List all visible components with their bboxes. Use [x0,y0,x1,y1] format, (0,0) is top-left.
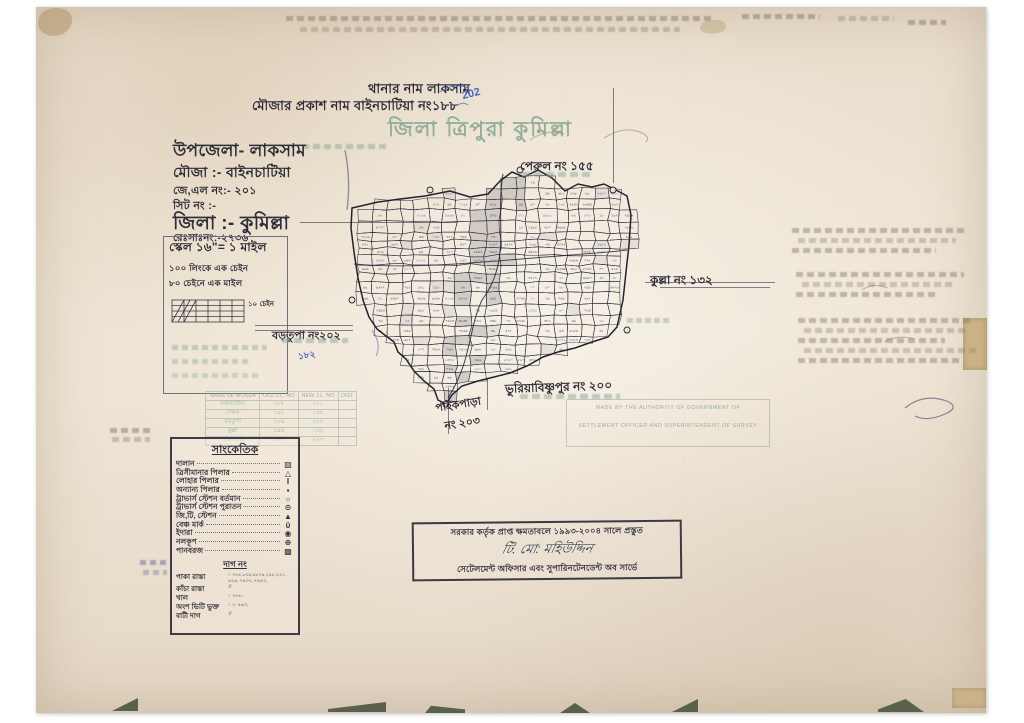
svg-text:২৪০৪: ২৪০৪ [390,338,399,342]
ghost-table-cell [338,437,356,446]
legend-symbol-icon: ▪ [282,486,294,495]
svg-text:৪৭৮৪: ৪৭৮৪ [489,286,498,290]
svg-text:১২: ১২ [599,319,603,323]
svg-text:৩৭০: ৩৭০ [460,242,467,246]
svg-text:১৮: ১৮ [545,202,549,206]
scale-line1: স্কেল ১৬"= ১ মাইল [169,239,287,259]
svg-text:৭৮১: ৭৮১ [418,367,425,371]
svg-text:২৮৬২: ২৮৬২ [473,250,482,254]
svg-text:৪৩৯০: ৪৩৯০ [390,297,399,301]
legend-symbol-icon: ϋ [282,521,294,530]
svg-text:২৪৫২: ২৪৫২ [597,242,606,246]
svg-text:৮৮: ৮৮ [559,286,563,290]
svg-text:২৮৭: ২৮৭ [490,258,497,262]
legend-symbol-icon: △ [282,469,294,478]
svg-text:২৩: ২৩ [545,242,549,246]
legend-leader-dots [243,498,280,499]
svg-text:৬৮: ৬৮ [378,329,382,333]
svg-text:৮০৫৮: ৮০৫৮ [583,267,592,271]
svg-text:৪০৮: ৪০৮ [584,214,591,218]
svg-text:৩৯: ৩৯ [491,329,495,333]
svg-text:৭৩৯২: ৭৩৯২ [624,214,633,218]
ghost-table-cell: বড়তুপা [206,419,260,428]
svg-text:০৬৬৭: ০৬৬৭ [489,250,498,254]
svg-text:৩৫২: ৩৫২ [570,267,577,271]
svg-text:২৫৩২: ২৫৩২ [569,202,578,206]
dag-row-label: পাকা রাস্তা [176,572,228,584]
dag-row: পাকা রাস্তা:- ৩৭৪,৮৩৯,৬৮৭৯,২৪৮,২৪১, ৬২৬,… [176,572,294,584]
svg-text:৯৪: ৯৪ [378,267,382,271]
svg-text:৮০৭০: ৮০৭০ [376,225,385,229]
pencil-note-strip [908,20,946,25]
svg-text:০০: ০০ [530,286,534,290]
svg-text:৯০৯: ৯০৯ [377,250,384,254]
ghost-authority-stamp: MADE BY THE AUTHORITY OF GOVERNMENT OF S… [566,399,770,447]
svg-text:৯৪: ৯৪ [419,319,423,323]
legend-symbol-icon: ⊙ [282,503,294,512]
svg-text:৯৫: ৯৫ [519,225,523,229]
svg-text:০৩: ০৩ [491,235,495,239]
ghost-table-cell: বাইনচাটিয়া [206,401,260,410]
svg-text:৪২১: ৪২১ [418,286,425,290]
svg-text:৫২১: ৫২১ [475,367,482,371]
svg-text:০৫৮: ০৫৮ [404,286,411,290]
pencil-note-strip [110,428,154,433]
dag-row-value: ঐ [228,611,294,620]
dag-row-value: :- ৩৭৪,৮৩৯,৬৮৭৯,২৪৮,২৪১, ৬২৬, ৭৯৩৭, ৭৯৪৩… [228,572,294,584]
svg-text:১৩২৪: ১৩২৪ [528,308,537,312]
legend-leader-dots [243,506,280,507]
svg-text:৮২১: ৮২১ [362,242,369,246]
scale-box: স্কেল ১৬"= ১ মাইল ১০০ লিংকে এক চেইন ৮০ চ… [163,236,288,394]
svg-text:৬১: ৬১ [599,329,603,333]
svg-text:২৮০৮: ২৮০৮ [624,225,633,229]
svg-text:৭৫২৭: ৭৫২৭ [504,242,513,246]
svg-text:৮৪৯: ৮৪৯ [505,367,512,371]
pencil-note-line [796,272,964,277]
dag-row: অংশ ভিটি ভুক্ত:- ২- ৪৬৩, [176,602,294,611]
legend-leader-dots [221,480,280,481]
svg-text:১৭: ১৭ [530,297,534,301]
svg-text:২৭: ২৭ [559,276,563,280]
svg-text:৭৯: ৭৯ [506,276,510,280]
svg-text:৫২২: ৫২২ [626,235,633,239]
svg-text:৫৮২: ৫৮২ [611,214,618,218]
svg-text:০৩২৭: ০৩২৭ [432,348,441,352]
svg-text:৪৪: ৪৪ [405,319,409,323]
legend-symbol-icon: ○ [282,495,294,504]
pencil-note-line [798,318,973,323]
legend-symbol-icon: ◉ [282,529,294,538]
ghost-table-cell [338,419,356,428]
ghost-label [282,338,348,343]
legend-symbol-icon: ▨ [282,460,294,469]
svg-text:০১৪৬: ০১৪৬ [459,202,468,206]
neighbor-blue-number: ১৮২ [297,347,316,364]
svg-text:০৭৭: ০৭৭ [584,258,591,262]
svg-text:২৬: ২৬ [545,297,549,301]
svg-text:৩৩৮: ৩৩৮ [433,286,440,290]
ghost-table-cell: ১৮৮ [260,401,298,410]
svg-text:৪৪: ৪৪ [363,286,367,290]
svg-text:৪১৮: ৪১৮ [490,202,497,206]
svg-text:২১০: ২১০ [404,267,411,271]
svg-text:৩৮: ৩৮ [447,202,451,206]
svg-text:১৩৯: ১৩৯ [418,376,425,380]
svg-text:৪২৫: ৪২৫ [611,267,618,271]
svg-text:২২: ২২ [530,235,534,239]
svg-text:৩১: ৩১ [612,276,616,280]
svg-text:৯৩: ৯৩ [519,202,523,206]
ghost-table-header: NAME OF MOUZA [206,392,260,401]
svg-text:৫৬: ৫৬ [419,225,423,229]
ghost-stamp-line2: SETTLEMENT OFFICER AND SUPERINTENDENT OF… [567,423,769,429]
svg-text:৮২: ৮২ [378,214,382,218]
svg-text:৯০: ৯০ [545,286,549,290]
svg-text:৭৭১: ৭৭১ [446,235,453,239]
svg-text:৬৪: ৬৪ [419,250,423,254]
legend-leader-dots [197,463,280,464]
legend-items: দালান▨ত্রিসীমানার পিলার△লোহার পিলারIঅন্য… [176,460,294,556]
svg-text:৭৪২৭: ৭৪২৭ [528,276,537,280]
svg-text:০৪: ০৪ [506,319,510,323]
svg-text:৫৫০: ৫৫০ [460,258,467,262]
scanned-cadastral-map-sheet: থানার নাম লাকসাম মৌজার প্রকাশ নাম বাইনচা… [0,0,1024,723]
pencil-note-line [792,228,964,233]
pencil-note-line [798,358,959,363]
ghost-table-cell: ১৫৫ [298,410,338,419]
legend-item: পানবরজ▩ [176,547,294,556]
svg-text:৭১৫০: ৭১৫০ [489,242,498,246]
blue-mark-strip [140,560,170,565]
svg-text:৩৩২৯: ৩৩২৯ [528,250,537,254]
svg-text:১৮: ১৮ [599,214,603,218]
svg-text:৭৫০: ৭৫০ [446,250,453,254]
svg-text:৩০৮: ৩০৮ [490,214,497,218]
tape-patch [963,318,987,370]
svg-text:২০১: ২০১ [518,214,525,218]
neighbor-label-kulla: কুল্লা নং ১৩২ [650,272,713,292]
svg-text:১৩৫৮: ১৩৫৮ [528,225,537,229]
ghost-row [172,359,252,364]
svg-text:৪১: ৪১ [378,297,382,301]
ghost-row [172,345,267,350]
neighbor-label-bortupa: বড়তুপা নং২০২ [272,327,341,346]
ghost-table-cell: কুল্লা [206,428,260,437]
svg-text:৬৭৫৮: ৬৭৫৮ [516,319,525,323]
svg-text:৯৫৭: ৯৫৭ [391,242,398,246]
svg-text:৮৮: ৮৮ [461,286,465,290]
ghost-table-cell [338,428,356,437]
svg-text:০৭৬: ০৭৬ [558,202,565,206]
pencil-note-strip [742,14,820,19]
svg-text:৬৭৬: ৬৭৬ [529,358,536,362]
dag-row: বাটী দাগঐ [176,611,294,620]
svg-text:০৩৯: ০৩৯ [446,348,453,352]
svg-text:৮৯০: ৮৯০ [518,358,525,362]
svg-text:২৯৭: ২৯৭ [611,202,618,206]
svg-text:৭৬৮৬: ৭৬৮৬ [569,258,578,262]
svg-text:৭৬: ৭৬ [378,319,382,323]
ghost-table-cell: ১৩২ [298,428,338,437]
svg-text:৯৬৭: ৯৬৭ [404,258,411,262]
pencil-note-line [798,338,945,343]
svg-text:৭৬: ৭৬ [447,276,451,280]
svg-text:৬৭২২: ৬৭২২ [610,286,619,290]
dag-row-label: কাঁচা রাস্তা [176,584,228,593]
svg-text:৮৫: ৮৫ [571,214,575,218]
svg-text:১০০: ১০০ [418,348,425,352]
cadastral-plot-map: ০২১৬৮২১৯৯৩৪৪৯৯৪৮২৮০৭০৯০৯৪৩৩২৯৪৯২৭৭৪১৭৩৫৩… [330,160,660,410]
svg-text:৩৪৬৮: ৩৪৬৮ [557,225,566,229]
svg-text:৫৮: ৫৮ [434,258,438,262]
svg-text:০৫৬: ০৫৬ [584,338,591,342]
ghost-table-cell [338,410,356,419]
svg-text:৪৬: ৪৬ [571,319,575,323]
ghost-table-cell: ১৬২ [260,410,298,419]
svg-text:৬১৭: ৬১৭ [404,338,411,342]
svg-text:৭০৩৫: ৭০৩৫ [516,297,525,301]
fold-streak [683,0,686,723]
legend-symbol-icon: I [282,477,294,486]
svg-text:৩৪: ৩৪ [545,192,549,196]
svg-text:৭৮০: ৭৮০ [544,225,551,229]
legend-leader-dots [219,515,280,516]
dag-row-value: :- ২- ৪৬৩, [228,602,294,611]
ghost-table-cell: ১৪৪ [260,428,298,437]
certification-stamp-box: সরকার কর্তৃক প্রাপ্ত ক্ষমতাবলে ১৯৯৩-২০০৪… [412,520,683,582]
dag-row: কাঁচা রাস্তাঐ [176,584,294,593]
svg-text:৬৭৭৫: ৬৭৭৫ [459,297,468,301]
svg-text:৪০: ৪০ [392,235,396,239]
legend-symbol-icon: ⊕ [282,538,294,547]
ghost-table-cell: ২০৩ [298,437,338,446]
svg-text:৮৬৩৩: ৮৬৩৩ [583,202,592,206]
svg-text:০৫: ০৫ [405,358,409,362]
pencil-note-strip [112,437,150,442]
legend-leader-dots [199,541,280,542]
svg-text:০৪৫: ০৪৫ [433,235,440,239]
ghost-table-header: OLD J.L. NO [260,392,298,401]
svg-text:৫৮: ৫৮ [612,258,616,262]
ghost-table-row: পেরুল১৬২১৫৫ [206,410,357,419]
svg-text:৪৩৩২: ৪৩৩২ [376,258,385,262]
svg-text:৬৯১: ৬৯১ [418,308,425,312]
dag-row-label: বাটী দাগ [176,611,228,620]
ghost-scale-stamp [302,144,390,149]
svg-text:৪৬৬: ৪৬৬ [529,242,536,246]
svg-text:৬২২৭: ৬২২৭ [417,258,426,262]
dag-row-label: অংশ ভিটি ভুক্ত [176,602,228,611]
svg-text:৭৯৩৩: ৭৯৩৩ [489,308,498,312]
svg-text:২৭৭: ২৭৭ [505,329,512,333]
svg-text:২৩১: ২৩১ [490,338,497,342]
svg-text:৭৪: ৭৪ [545,329,549,333]
ghost-row [172,373,260,378]
ghost-label [627,318,669,323]
pencil-note-strip [838,16,894,21]
svg-text:৯৮১: ৯৮১ [558,192,565,196]
svg-text:৭৪২৪: ৭৪২৪ [417,297,426,301]
svg-text:৩০: ৩০ [476,202,480,206]
dag-row-value: :- ৩৭৪,- [228,593,294,602]
svg-text:৪৯৪০: ৪৯৪০ [583,276,592,280]
svg-text:৩৩: ৩৩ [419,235,423,239]
svg-text:৩৫৬: ৩৫৬ [505,348,512,352]
svg-text:২৪: ২৪ [530,181,534,185]
svg-text:৬৮: ৬৮ [392,258,396,262]
svg-text:৬২৮: ৬২৮ [570,192,577,196]
stamp-line3: সেটেলমেন্ট অফিসার এবং সুপারিনটেনডেন্ট অব… [417,561,677,578]
svg-text:৩০২: ৩০২ [544,319,551,323]
legend-symbol-icon: ▩ [282,547,294,556]
svg-text:৬৮: ৬৮ [559,348,563,352]
svg-text:৭৩৫৩: ৭৩৫৩ [376,308,385,312]
svg-text:০৮৬৩: ০৮৬৩ [459,329,468,333]
svg-text:৯৪৯১: ৯৪৯১ [543,214,552,218]
svg-text:০৪: ০৪ [476,308,480,312]
svg-text:২৩৭৮: ২৩৭৮ [445,358,454,362]
scale-line3: ৮০ চেইনে এক মাইল [169,277,287,291]
officer-signature: টি. মো: মহিউদ্দিন [414,539,679,563]
svg-text:১৮: ১৮ [392,267,396,271]
district-stamp-heading: জিলা ত্রিপুরা কুমিল্লা [388,113,573,148]
dag-row-label: খাল [176,593,228,602]
legend-leader-dots [195,532,280,533]
svg-text:৪৫৯০: ৪৫৯০ [445,192,454,196]
svg-text:৯৫: ৯৫ [434,376,438,380]
svg-text:৪৬৬: ৪৬৬ [475,358,482,362]
svg-text:৮৪০৯: ৮৪০৯ [473,258,482,262]
svg-text:০২১৬: ০২১৬ [361,235,370,239]
diagonal-scale-bar: ১০ চেইন [168,294,278,328]
pencil-note-line [798,238,956,243]
svg-text:২৩৯: ২৩৯ [584,286,591,290]
svg-text:৬৬: ৬৬ [545,267,549,271]
pencil-note-line [804,348,979,353]
pencil-note-line [796,292,936,297]
svg-text:৩৭৬৫: ৩৭৬৫ [489,267,498,271]
svg-text:৯১৭৮: ৯১৭৮ [445,297,454,301]
legend-leader-dots [206,524,280,525]
pencil-note-line [804,328,965,333]
svg-text:৩০৫৮: ৩০৫৮ [557,242,566,246]
svg-text:০৮৩: ০৮৩ [584,308,591,312]
svg-text:৯২৭৭: ৯২৭৭ [376,286,385,290]
ghost-table-cell: ২০৬ [260,419,298,428]
svg-text:০৮৯৫: ০৮৯৫ [473,276,482,280]
svg-text:৯৯৪: ৯৯৪ [362,297,369,301]
pencil-note-strip [286,16,714,21]
svg-text:৬৬৬: ৬৬৬ [433,308,440,312]
legend-item: বেঞ্চ মার্কϋ [176,521,294,530]
legend-box: সাংকেতিক দালান▨ত্রিসীমানার পিলার△লোহার প… [170,437,300,635]
legend-leader-dots [232,472,280,473]
svg-text:৭৪৩: ৭৪৩ [460,235,467,239]
svg-text:৬৮: ৬৮ [476,286,480,290]
svg-text:৭৪২: ৭৪২ [475,319,482,323]
stamp-line1: সরকার কর্তৃক প্রাপ্ত ক্ষমতাবলে ১৯৯৩-২০০৪… [417,524,677,541]
svg-text:২৫: ২৫ [491,348,495,352]
svg-text:৫৭: ৫৭ [599,276,603,280]
svg-text:৪৫৬১: ৪৫৬১ [432,297,441,301]
svg-text:৬১৮৬: ৬১৮৬ [569,329,578,333]
svg-text:৪৩: ৪৩ [559,329,563,333]
scale-line2: ১০০ লিংকে এক চেইন [169,262,287,276]
svg-text:৯০: ৯০ [530,202,534,206]
svg-text:৩২৩৭: ৩২৩৭ [459,319,468,323]
svg-text:০৫৮৩: ০৫৮৩ [445,319,454,323]
svg-text:৯৩৭: ৯৩৭ [598,250,605,254]
svg-text:৯০: ৯০ [559,308,563,312]
ghost-label [522,172,592,177]
svg-text:৬৮৮: ৬৮৮ [475,348,482,352]
svg-text:৪৩৫: ৪৩৫ [490,297,497,301]
tape-patch [952,688,986,708]
svg-text:৮৯: ৮৯ [585,192,589,196]
pencil-note-strip [300,27,680,32]
svg-text:১৬২৭: ১৬২৭ [445,384,454,388]
svg-text:৯৭৮০: ৯৭৮০ [597,192,606,196]
svg-text:৯৯৩: ৯৯৩ [362,267,369,271]
dag-row: খাল:- ৩৭৪,- [176,593,294,602]
svg-text:৭১২: ৭১২ [433,202,440,206]
pencil-note-line [802,282,956,287]
svg-text:৭১২৬: ৭১২৬ [417,214,426,218]
legend-leader-dots [205,550,280,551]
neighbor-label-paikpara: পাইকপাড়া নং ২০৩ [434,393,485,438]
svg-text:৭৯৭: ৭৯৭ [584,297,591,301]
scale-bar-label: ১০ চেইন [248,299,275,308]
pencil-note-line [792,248,936,253]
svg-text:৩৪৮৩: ৩৪৮৩ [569,338,578,342]
svg-text:৬৯: ৬৯ [447,376,451,380]
ghost-stamp-line1: MADE BY THE AUTHORITY OF GOVERNMENT OF [567,405,769,411]
blue-mark-strip [143,570,167,575]
dag-section-title: দাগ নং [176,558,294,572]
legend-symbol-icon: ▲ [282,512,294,521]
legend-item-label: পানবরজ [176,545,203,558]
svg-text:৮৯৬৬: ৮৯৬৬ [445,214,454,218]
svg-text:৮৪৯: ৮৪৯ [404,329,411,333]
svg-text:২০২: ২০২ [584,250,591,254]
ghost-table-row: কুল্লা১৪৪১৩২ [206,428,357,437]
ghost-table-row: বড়তুপা২০৬২০২ [206,419,357,428]
dag-row-value: ঐ [228,584,294,593]
svg-text:৭৭৬: ৭৭৬ [446,367,453,371]
svg-text:৮১: ৮১ [461,214,465,218]
ghost-table-cell: ২০২ [298,419,338,428]
ghost-table-cell: পেরুল [206,410,260,419]
svg-text:০৬৪: ০৬৪ [558,297,565,301]
svg-text:৪৩৮: ৪৩৮ [490,319,497,323]
svg-text:২৫৩: ২৫৩ [433,225,440,229]
svg-text:৯৫৩৬: ৯৫৩৬ [557,267,566,271]
svg-text:৯১০২: ৯১০২ [557,338,566,342]
svg-text:০০: ০০ [599,267,603,271]
svg-text:০৮১৫: ০৮১৫ [459,348,468,352]
legend-leader-dots [222,489,280,490]
svg-text:৯৭২০: ৯৭২০ [504,358,513,362]
dag-rows: পাকা রাস্তা:- ৩৭৪,৮৩৯,৬৮৭৯,২৪৮,২৪১, ৬২৬,… [176,572,294,620]
